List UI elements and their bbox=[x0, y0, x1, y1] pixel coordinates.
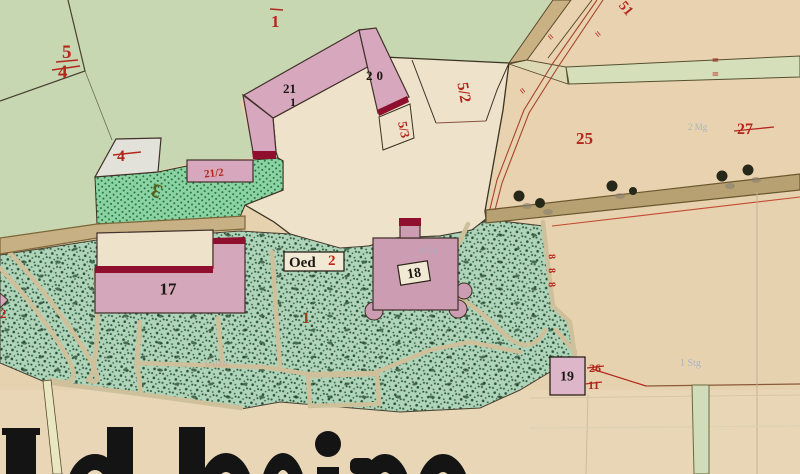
svg-text:4: 4 bbox=[117, 148, 125, 165]
svg-text:21/2: 21/2 bbox=[204, 166, 225, 180]
svg-text:o Cu: o Cu bbox=[420, 245, 438, 255]
svg-text:Oed: Oed bbox=[289, 255, 316, 271]
svg-text:17: 17 bbox=[160, 280, 178, 299]
svg-text:2 Mg: 2 Mg bbox=[688, 122, 708, 132]
svg-text:Cuza: Cuza bbox=[205, 357, 228, 369]
svg-text:=: = bbox=[712, 53, 719, 67]
svg-text:1 Stg: 1 Stg bbox=[680, 358, 701, 369]
svg-text:1: 1 bbox=[271, 12, 280, 31]
svg-text:5: 5 bbox=[62, 42, 72, 63]
svg-text:25: 25 bbox=[576, 129, 593, 148]
svg-text:19: 19 bbox=[560, 370, 574, 385]
svg-text:1: 1 bbox=[302, 310, 310, 327]
svg-text:1: 1 bbox=[290, 95, 296, 109]
svg-text:8: 8 bbox=[546, 268, 557, 274]
svg-text:20: 20 bbox=[366, 68, 387, 83]
svg-text:2: 2 bbox=[0, 306, 7, 321]
svg-text:21: 21 bbox=[283, 81, 296, 96]
svg-text:=: = bbox=[712, 67, 719, 81]
svg-text:18: 18 bbox=[406, 265, 422, 282]
svg-text:8: 8 bbox=[546, 282, 557, 288]
svg-text:5/2: 5/2 bbox=[453, 81, 473, 104]
svg-text:2: 2 bbox=[328, 253, 336, 269]
svg-text:11: 11 bbox=[588, 378, 599, 392]
svg-text:8: 8 bbox=[546, 254, 557, 260]
svg-text:4: 4 bbox=[58, 62, 68, 83]
